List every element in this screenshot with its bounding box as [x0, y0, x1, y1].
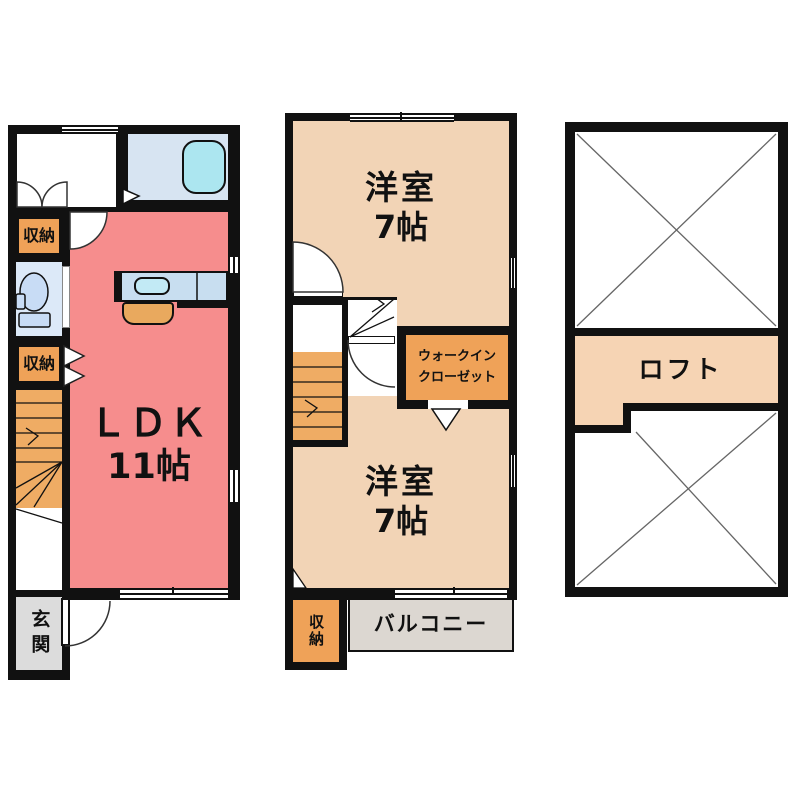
loft-label: ロフト	[608, 346, 753, 394]
kitchen-wall-bottom	[177, 300, 228, 308]
balcony: バルコニー	[348, 598, 514, 652]
hall-2f	[293, 305, 342, 352]
window-1f-top	[62, 125, 118, 134]
window-ldk-right-upper	[228, 257, 240, 273]
under-stair-room	[16, 508, 62, 590]
entrance-hall: 玄関	[16, 595, 62, 670]
ldk-label: ＬＤＫ 11帖	[70, 392, 228, 497]
bedroom-bottom-label: 洋室 7帖	[293, 450, 509, 552]
bedroom-top-size: 7帖	[374, 208, 428, 246]
entrance-door-leaf	[61, 598, 70, 646]
bedroom-bottom-size: 7帖	[374, 502, 428, 540]
loft-void-top	[575, 132, 778, 328]
window-2f-top	[350, 113, 454, 122]
window-tick	[400, 112, 402, 120]
storage-2f: 収納	[285, 592, 347, 670]
loft-void-bottom	[575, 433, 778, 587]
storage-1f-mid: 収納	[16, 344, 62, 384]
window-tick	[453, 587, 455, 595]
kitchen-island	[122, 302, 174, 325]
entrance-door-arc	[65, 601, 110, 646]
wall-under-door-2f	[293, 297, 348, 305]
wic-line2: クローゼット	[418, 368, 496, 388]
toilet-door	[62, 266, 70, 328]
storage-1f-top: 収納	[16, 216, 62, 256]
storage-1f-top-label: 収納	[19, 219, 59, 253]
floorplan-canvas: 収納 収納 玄関 ＬＤＫ 11帖 ウォークイン クローゼット	[0, 0, 800, 800]
wall-under-stairs-2f	[293, 440, 348, 447]
wic-door-gap	[428, 400, 468, 409]
entrance-label: 玄関	[16, 597, 62, 670]
wic-line1: ウォークイン	[418, 347, 496, 367]
window-2f-right-lower	[509, 455, 517, 487]
bedroom-top-name: 洋室	[365, 168, 437, 208]
bedroom-bottom-name: 洋室	[365, 462, 437, 502]
window-ldk-bottom	[120, 588, 228, 600]
ldk-name: ＬＤＫ	[89, 401, 209, 447]
loft-name: ロフト	[638, 355, 722, 385]
window-ldk-right-lower	[228, 470, 240, 502]
balcony-label: バルコニー	[350, 600, 512, 650]
stairs-2f	[293, 352, 342, 440]
storage-2f-label: 収納	[293, 600, 339, 662]
walk-in-closet: ウォークイン クローゼット	[397, 326, 517, 409]
window-2f-right-upper	[509, 258, 517, 288]
door-leaf-corridor	[348, 336, 395, 344]
door-leaf-bedroom-top	[293, 289, 343, 297]
wic-label: ウォークイン クローゼット	[406, 335, 508, 400]
toilet-room	[16, 262, 62, 336]
kitchen-sink	[134, 277, 170, 295]
bathtub	[182, 140, 226, 194]
storage-1f-mid-label: 収納	[19, 347, 59, 381]
window-tick	[172, 587, 174, 595]
bedroom-top-label: 洋室 7帖	[293, 156, 509, 258]
loft-stair-landing	[348, 297, 397, 340]
corridor-2f	[348, 340, 397, 396]
ldk-size: 11帖	[107, 446, 191, 488]
stairs-1f	[16, 390, 62, 508]
washroom	[17, 134, 116, 207]
